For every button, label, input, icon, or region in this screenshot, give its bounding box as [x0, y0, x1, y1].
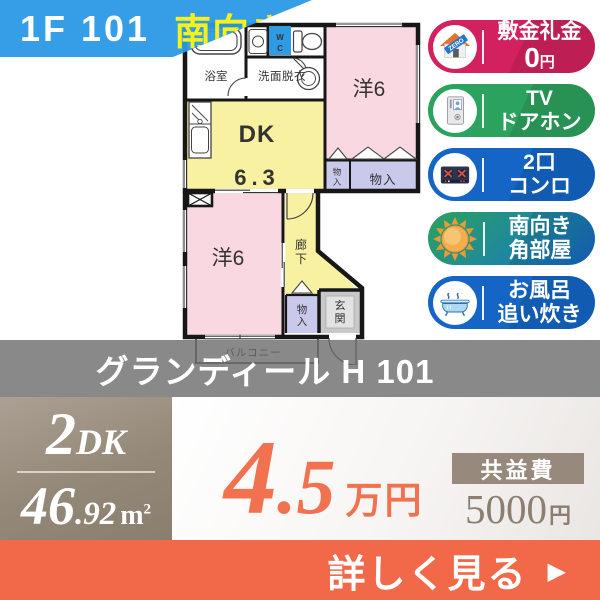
- badge-corner-line1: 南向き: [485, 215, 595, 238]
- rent-integer: 4: [224, 436, 277, 521]
- closet-large-label: 物入: [369, 173, 396, 187]
- area-unit: m2: [120, 502, 151, 530]
- fee-label: 共益費: [452, 453, 584, 484]
- badge-deposit-line1: 敷金礼金: [484, 20, 595, 43]
- badge-south-corner: 南向き 角部屋: [428, 212, 595, 265]
- room-dk-size: 6.3: [234, 165, 280, 190]
- badge-stove-line2: コンロ: [484, 175, 595, 198]
- badge-tv-doorphone: TV ドアホン: [428, 84, 595, 137]
- badge-bath-line2: 追い炊き: [484, 303, 595, 326]
- badge-bath-line1: お風呂: [484, 279, 595, 302]
- corridor-label-2: 下: [295, 252, 307, 266]
- area-decimal: .92: [75, 498, 116, 531]
- room-bath-label: 浴室: [205, 69, 228, 83]
- entrance-label-2: 関: [335, 312, 346, 325]
- details-cta-bar[interactable]: 詳しく見る ▶: [0, 540, 600, 600]
- details-cta-label[interactable]: 詳しく見る: [328, 543, 528, 598]
- building-name: グランディール H 101: [96, 345, 435, 393]
- badge-corner-line2: 角部屋: [485, 239, 595, 262]
- rent-decimal: .5: [277, 456, 336, 518]
- badge-doorphone-line2: ドアホン: [484, 111, 595, 134]
- area-unit-sup: 2: [144, 502, 152, 518]
- badge-stove-line1: 2口: [484, 151, 595, 174]
- floorplan: W C 浴室 洗面脱衣 洋6 DK 6.3 物 入 物入 洋6 廊 下 物 入 …: [180, 20, 425, 365]
- intercom-icon: [433, 89, 477, 133]
- badge-deposit-amount: 0: [524, 42, 540, 73]
- divider: [17, 471, 155, 473]
- building-title-bar: グランディール H 101: [0, 340, 600, 397]
- rent-price: 4.5万円: [224, 436, 424, 524]
- price-panel: 4.5万円 共益費 5000円: [172, 397, 600, 540]
- layout-number: 2: [46, 404, 76, 464]
- floor-unit-label: 1F 101: [20, 8, 150, 50]
- feature-badges: ZERO 敷金礼金 0円: [428, 20, 595, 340]
- closet-small-label-1: 物: [333, 167, 342, 177]
- room-western-bottom-label: 洋6: [212, 247, 245, 270]
- corridor-label-1: 廊: [295, 237, 307, 252]
- sun-icon: [432, 216, 478, 262]
- closet-bottom-label-2: 入: [297, 316, 308, 328]
- arrow-right-icon: ▶: [548, 557, 566, 586]
- badge-deposit-zero: ZERO 敷金礼金 0円: [428, 20, 595, 73]
- badge-doorphone-line1: TV: [484, 87, 595, 110]
- summary-section: 2DK 46.92m2 4.5万円 共益費 5000円: [0, 397, 600, 540]
- entrance-label-1: 玄: [335, 298, 346, 312]
- badge-two-burner-stove: 2口 コンロ: [428, 148, 595, 201]
- closet-bottom-label-1: 物: [297, 303, 308, 316]
- room-western-top-label: 洋6: [353, 78, 386, 101]
- vent-box: [188, 193, 212, 206]
- rent-unit: 万円: [346, 470, 424, 524]
- house-zero-icon: ZERO: [433, 25, 477, 69]
- bathtub-icon: [433, 281, 477, 325]
- fee-unit: 円: [549, 498, 571, 530]
- fee-amount: 5000: [465, 489, 547, 530]
- room-dk-label: DK: [239, 121, 276, 148]
- badge-deposit-unit: 円: [540, 54, 555, 71]
- stove-icon: [433, 153, 477, 197]
- listing-card: W C 浴室 洗面脱衣 洋6 DK 6.3 物 入 物入 洋6 廊 下 物 入 …: [0, 0, 600, 600]
- closet-small-label-2: 入: [333, 177, 342, 187]
- area-integer: 46: [21, 479, 75, 533]
- room-washroom-label: 洗面脱衣: [258, 69, 306, 83]
- wc-label-c: C: [277, 44, 283, 53]
- badge-bath-reheat: お風呂 追い炊き: [428, 276, 595, 329]
- wc-label-w: W: [276, 33, 284, 42]
- layout-type: DK: [76, 424, 126, 460]
- layout-area-box: 2DK 46.92m2: [0, 397, 172, 540]
- common-fee: 共益費 5000円: [452, 453, 584, 530]
